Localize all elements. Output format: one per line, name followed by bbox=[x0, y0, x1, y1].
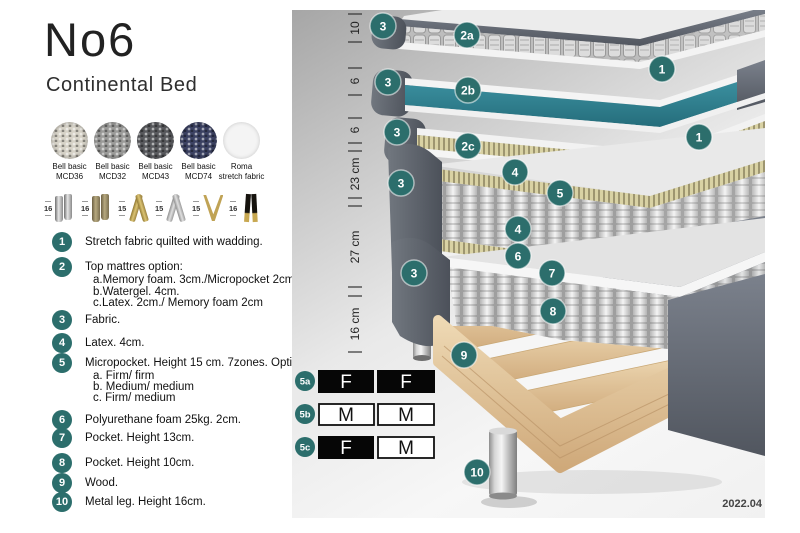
legend-badge: 1 bbox=[52, 232, 72, 252]
fabric-swatch: Romastretch fabric bbox=[220, 122, 263, 181]
callout-5: 5 bbox=[557, 187, 564, 201]
leg-icon bbox=[165, 192, 187, 224]
leg-options-row: 16 16 15 15 15 16 bbox=[44, 186, 266, 230]
dimension-label: 10 bbox=[348, 21, 362, 35]
callout-3: 3 bbox=[394, 126, 401, 140]
version-date: 2022.04 bbox=[722, 498, 763, 510]
fabric-name: Bell basic bbox=[181, 162, 215, 172]
fabric-swatch-circle bbox=[180, 122, 217, 159]
firmness-label-5a: 5a bbox=[300, 377, 311, 388]
fabric-code: stretch fabric bbox=[219, 172, 265, 182]
exploded-diagram-panel: 10 6 6 23 cm 27 cm 16 cm bbox=[292, 10, 765, 518]
firmness-cell: F bbox=[340, 438, 352, 459]
legend-text: Fabric. bbox=[85, 314, 120, 326]
legend-badge: 9 bbox=[52, 473, 72, 493]
legend-text: Pocket. Height 10cm. bbox=[85, 457, 194, 469]
legend-badge: 6 bbox=[52, 410, 72, 430]
callout-2b: 2b bbox=[461, 84, 475, 98]
legend-text: Latex. 4cm. bbox=[85, 337, 144, 349]
leg-height: 16 bbox=[229, 204, 237, 213]
firmness-label-5b: 5b bbox=[299, 410, 310, 421]
fabric-code: MCD36 bbox=[52, 172, 86, 182]
legend-item-1: 1 Stretch fabric quilted with wadding. bbox=[52, 232, 263, 252]
legend-text: Stretch fabric quilted with wadding. bbox=[85, 236, 263, 248]
legend-badge: 10 bbox=[52, 492, 72, 512]
legend-badge: 4 bbox=[52, 333, 72, 353]
fabric-swatch-circle bbox=[51, 122, 88, 159]
fabric-code: MCD74 bbox=[181, 172, 215, 182]
leg-icon bbox=[91, 192, 113, 224]
firmness-cell: F bbox=[400, 372, 412, 393]
legend-text: Wood. bbox=[85, 477, 118, 489]
leg-icon bbox=[128, 192, 150, 224]
fabric-swatch: Bell basicMCD32 bbox=[91, 122, 134, 181]
callout-3: 3 bbox=[380, 20, 387, 34]
fabric-swatch-circle bbox=[223, 122, 260, 159]
legend-text: Pocket. Height 13cm. bbox=[85, 432, 194, 444]
legend-item-7: 7 Pocket. Height 13cm. bbox=[52, 428, 194, 448]
page-title: No6 bbox=[44, 12, 136, 67]
fabric-name: Bell basic bbox=[138, 162, 172, 172]
firmness-options: 5a F F 5b M M 5c F M bbox=[295, 370, 435, 459]
leg-option-tapered-black: 16 bbox=[229, 186, 266, 230]
legend-badge: 7 bbox=[52, 428, 72, 448]
legend-subitem: a.Memory foam. 3cm./Micropocket 2cm bbox=[93, 274, 294, 286]
callout-10: 10 bbox=[470, 466, 484, 480]
dimension-label: 27 cm bbox=[348, 231, 362, 264]
leg-option-twisted-gold: 15 bbox=[118, 186, 155, 230]
callout-1: 1 bbox=[696, 131, 703, 145]
page-subtitle: Continental Bed bbox=[46, 74, 197, 97]
legend-text: Metal leg. Height 16cm. bbox=[85, 496, 206, 508]
dimension-label: 23 cm bbox=[348, 158, 362, 191]
legend-item-9: 9 Wood. bbox=[52, 473, 118, 493]
firmness-label-5c: 5c bbox=[300, 443, 311, 454]
firmness-cell: M bbox=[398, 405, 414, 426]
callout-2c: 2c bbox=[461, 140, 475, 154]
legend-badge: 2 bbox=[52, 257, 72, 277]
fabric-swatch: Bell basicMCD43 bbox=[134, 122, 177, 181]
callout-6: 6 bbox=[515, 250, 522, 264]
legend-item-6: 6 Polyurethane foam 25kg. 2cm. bbox=[52, 410, 241, 430]
legend-item-10: 10 Metal leg. Height 16cm. bbox=[52, 492, 206, 512]
layer-top-mattress-2a bbox=[371, 10, 765, 69]
legend-item-3: 3 Fabric. bbox=[52, 310, 120, 330]
fabric-name: Roma bbox=[219, 162, 265, 172]
leg-height: 16 bbox=[44, 204, 52, 213]
leg-option-cylinder-wood: 16 bbox=[81, 186, 118, 230]
callout-1: 1 bbox=[659, 63, 666, 77]
legend-subitem: c.Latex. 2cm./ Memory foam 2cm bbox=[93, 297, 263, 309]
leg-icon bbox=[202, 192, 224, 224]
firmness-cell: M bbox=[338, 405, 354, 426]
fabric-swatch: Bell basicMCD36 bbox=[48, 122, 91, 181]
product-sheet: No6 Continental Bed Bell basicMCD36 Bell… bbox=[0, 0, 800, 533]
dimension-label: 6 bbox=[348, 77, 362, 84]
leg-height: 15 bbox=[192, 204, 200, 213]
firmness-cell: M bbox=[398, 438, 414, 459]
leg-height: 15 bbox=[118, 204, 126, 213]
dimension-label: 16 cm bbox=[348, 308, 362, 341]
callout-4: 4 bbox=[512, 166, 519, 180]
callout-4: 4 bbox=[515, 223, 522, 237]
leg-height: 16 bbox=[81, 204, 89, 213]
legend-item-4: 4 Latex. 4cm. bbox=[52, 333, 144, 353]
fabric-swatch-circle bbox=[137, 122, 174, 159]
callout-3: 3 bbox=[398, 177, 405, 191]
legend-item-5: 5 Micropocket. Height 15 cm. 7zones. Opt… bbox=[52, 353, 308, 373]
callout-2a: 2a bbox=[460, 29, 474, 43]
legend-text: Polyurethane foam 25kg. 2cm. bbox=[85, 414, 241, 426]
callout-9: 9 bbox=[461, 349, 468, 363]
fabric-swatch: Bell basicMCD74 bbox=[177, 122, 220, 181]
leg-option-twisted-silver: 15 bbox=[155, 186, 192, 230]
callout-7: 7 bbox=[549, 267, 556, 281]
legend-item-8: 8 Pocket. Height 10cm. bbox=[52, 453, 194, 473]
base-box-right bbox=[668, 274, 765, 456]
leg-height: 15 bbox=[155, 204, 163, 213]
callout-8: 8 bbox=[550, 305, 557, 319]
leg-option-cylinder-silver: 16 bbox=[44, 186, 81, 230]
fabric-name: Bell basic bbox=[52, 162, 86, 172]
layer-top-mattress-2b bbox=[370, 60, 765, 133]
dimension-label: 6 bbox=[348, 126, 362, 133]
leg-icon bbox=[239, 192, 261, 224]
bed-exploded-diagram: 10 6 6 23 cm 27 cm 16 cm bbox=[292, 10, 765, 518]
legend-badge: 3 bbox=[52, 310, 72, 330]
leg-option-hairpin-gold: 15 bbox=[192, 186, 229, 230]
legend-text: Micropocket. Height 15 cm. 7zones. Optio… bbox=[85, 357, 308, 369]
legend-badge: 5 bbox=[52, 353, 72, 373]
fabric-swatch-circle bbox=[94, 122, 131, 159]
firmness-cell: F bbox=[340, 372, 352, 393]
legend-badge: 8 bbox=[52, 453, 72, 473]
legend-text: Top mattres option: bbox=[85, 261, 183, 273]
fabric-name: Bell basic bbox=[95, 162, 129, 172]
callout-3: 3 bbox=[385, 76, 392, 90]
fabric-code: MCD32 bbox=[95, 172, 129, 182]
fabric-code: MCD43 bbox=[138, 172, 172, 182]
leg-icon bbox=[54, 192, 76, 224]
fabric-swatch-row: Bell basicMCD36 Bell basicMCD32 Bell bas… bbox=[48, 122, 263, 181]
callout-3: 3 bbox=[411, 267, 418, 281]
legend-subitem: c. Firm/ medium bbox=[93, 392, 175, 404]
